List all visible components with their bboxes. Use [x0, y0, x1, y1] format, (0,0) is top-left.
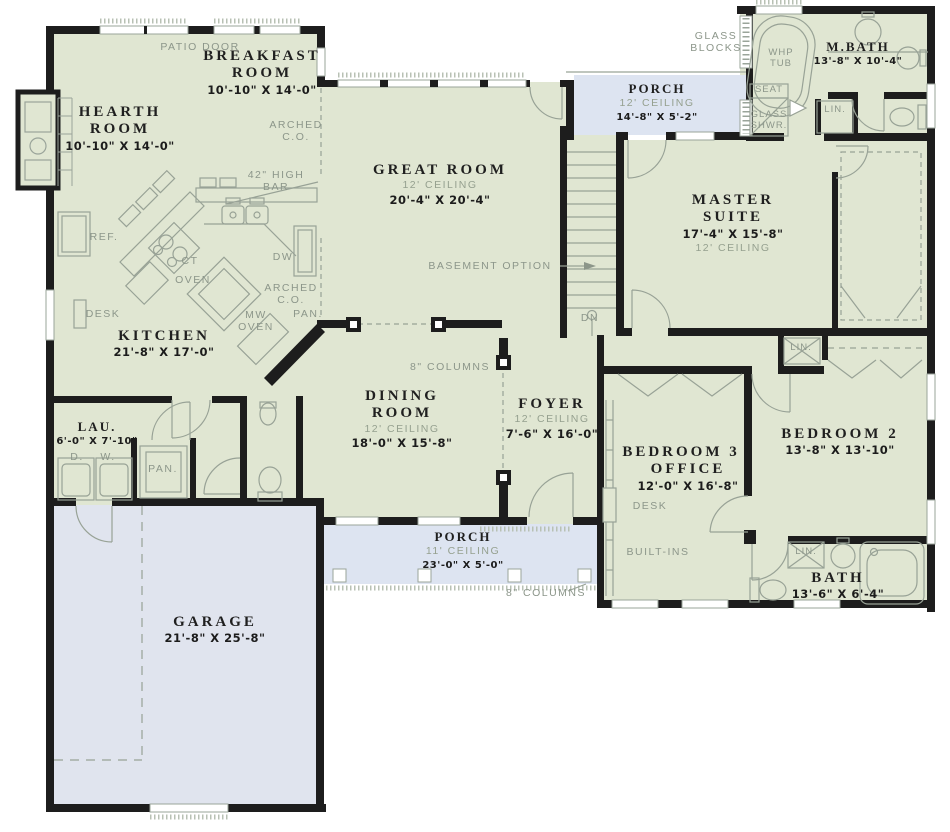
- patio-door-label: PATIO DOOR: [160, 41, 239, 53]
- room-label-porch-bottom: PORCH 11' CEILING 23'-0" X 5'-0": [378, 530, 548, 572]
- room-label-kitchen: KITCHEN 21'-8" X 17'-0": [84, 328, 244, 361]
- room-name: FOYER: [482, 396, 622, 413]
- room-dims: 13'-6" X 6'-4": [753, 587, 923, 603]
- room-dims: 10'-10" X 14'-0": [55, 139, 185, 155]
- arched-co-label: ARCHED C.O.: [264, 119, 328, 143]
- room-dims: 12'-0" X 16'-8": [591, 479, 786, 495]
- room-ceiling: 12' CEILING: [345, 423, 460, 437]
- mw-oven-label: MW OVEN: [231, 309, 281, 333]
- room-name: PORCH: [582, 82, 732, 97]
- room-label-bath: BATH 13'-6" X 6'-4": [753, 570, 923, 603]
- room-ceiling: 12' CEILING: [482, 413, 622, 427]
- room-label-breakfast: BREAKFAST ROOM 10'-10" X 14'-0": [180, 48, 345, 98]
- room-name: LAU.: [47, 420, 147, 435]
- down-label: DN: [581, 312, 599, 324]
- room-dims: 18'-0" X 15'-8": [345, 436, 460, 452]
- room-name: BREAKFAST ROOM: [180, 48, 345, 83]
- arched-co-kitchen-label: ARCHED C.O.: [258, 282, 324, 306]
- pan-kitchen-label: PAN.: [293, 308, 323, 320]
- desk-kitchen-label: DESK: [86, 308, 121, 320]
- room-name: PORCH: [378, 530, 548, 545]
- basement-option-label: BASEMENT OPTION: [428, 260, 551, 272]
- room-dims: 7'-6" X 16'-0": [482, 427, 622, 443]
- room-ceiling: 12' CEILING: [582, 97, 732, 111]
- lin-mbath-label: LIN.: [824, 105, 845, 116]
- ct-label: CT: [182, 255, 199, 267]
- desk-bed3-label: DESK: [633, 500, 668, 512]
- room-dims: 13'-8" X 13'-10": [740, 443, 940, 459]
- columns-top-label: 8" COLUMNS: [410, 361, 490, 373]
- lin-hall-label: LIN.: [790, 343, 811, 354]
- room-name: BEDROOM 2: [740, 426, 940, 443]
- seat-label: SEAT: [755, 85, 783, 96]
- room-label-dining: DINING ROOM 12' CEILING 18'-0" X 15'-8": [345, 388, 460, 452]
- glass-blocks-label: GLASS BLOCKS: [685, 30, 747, 54]
- high-bar-label: 42" HIGH BAR: [239, 169, 313, 193]
- oven-label: OVEN: [175, 274, 211, 286]
- columns-bottom-label: 8" COLUMNS: [506, 587, 586, 599]
- room-label-foyer: FOYER 12' CEILING 7'-6" X 16'-0": [482, 396, 622, 442]
- room-label-hearth: HEARTH ROOM 10'-10" X 14'-0": [55, 104, 185, 154]
- whp-tub-label: WHP TUB: [761, 48, 801, 70]
- room-name: HEARTH ROOM: [55, 104, 185, 139]
- room-label-porch-top: PORCH 12' CEILING 14'-8" X 5'-2": [582, 82, 732, 124]
- dw-label: DW: [273, 251, 294, 263]
- room-label-laundry: LAU. 6'-0" X 7'-10": [47, 420, 147, 448]
- room-dims: 14'-8" X 5'-2": [582, 111, 732, 125]
- ref-label: REF.: [90, 231, 119, 243]
- room-label-bed2: BEDROOM 2 13'-8" X 13'-10": [740, 426, 940, 459]
- room-ceiling: 11' CEILING: [378, 545, 548, 559]
- room-dims: 6'-0" X 7'-10": [47, 435, 147, 449]
- room-label-great: GREAT ROOM 12' CEILING 20'-4" X 20'-4": [320, 162, 560, 208]
- room-label-garage: GARAGE 21'-8" X 25'-8": [125, 614, 305, 647]
- floor-plan-page: HEARTH ROOM 10'-10" X 14'-0" BREAKFAST R…: [0, 0, 950, 832]
- room-name: DINING ROOM: [345, 388, 460, 423]
- room-dims: 20'-4" X 20'-4": [320, 193, 560, 209]
- room-ceiling: 12' CEILING: [320, 179, 560, 193]
- room-dims: 10'-10" X 14'-0": [180, 83, 345, 99]
- room-name: GARAGE: [125, 614, 305, 631]
- room-dims: 21'-8" X 25'-8": [125, 631, 305, 647]
- room-label-master: MASTER SUITE 17'-4" X 15'-8" 12' CEILING: [671, 192, 796, 256]
- room-name: MASTER SUITE: [671, 192, 796, 227]
- room-dims: 17'-4" X 15'-8": [671, 227, 796, 243]
- room-ceiling: 12' CEILING: [671, 242, 796, 256]
- dryer-label: D.: [70, 451, 84, 463]
- built-ins-label: BUILT-INS: [627, 546, 690, 558]
- room-dims: 21'-8" X 17'-0": [84, 345, 244, 361]
- pan-laundry-label: PAN.: [148, 463, 178, 475]
- lin-bath-label: LIN.: [795, 547, 816, 558]
- room-name: KITCHEN: [84, 328, 244, 345]
- washer-label: W.: [100, 451, 115, 463]
- room-name: BATH: [753, 570, 923, 587]
- room-name: GREAT ROOM: [320, 162, 560, 179]
- room-dims: 23'-0" X 5'-0": [378, 559, 548, 573]
- glass-shwr-label: GLASS SHWR.: [740, 110, 798, 132]
